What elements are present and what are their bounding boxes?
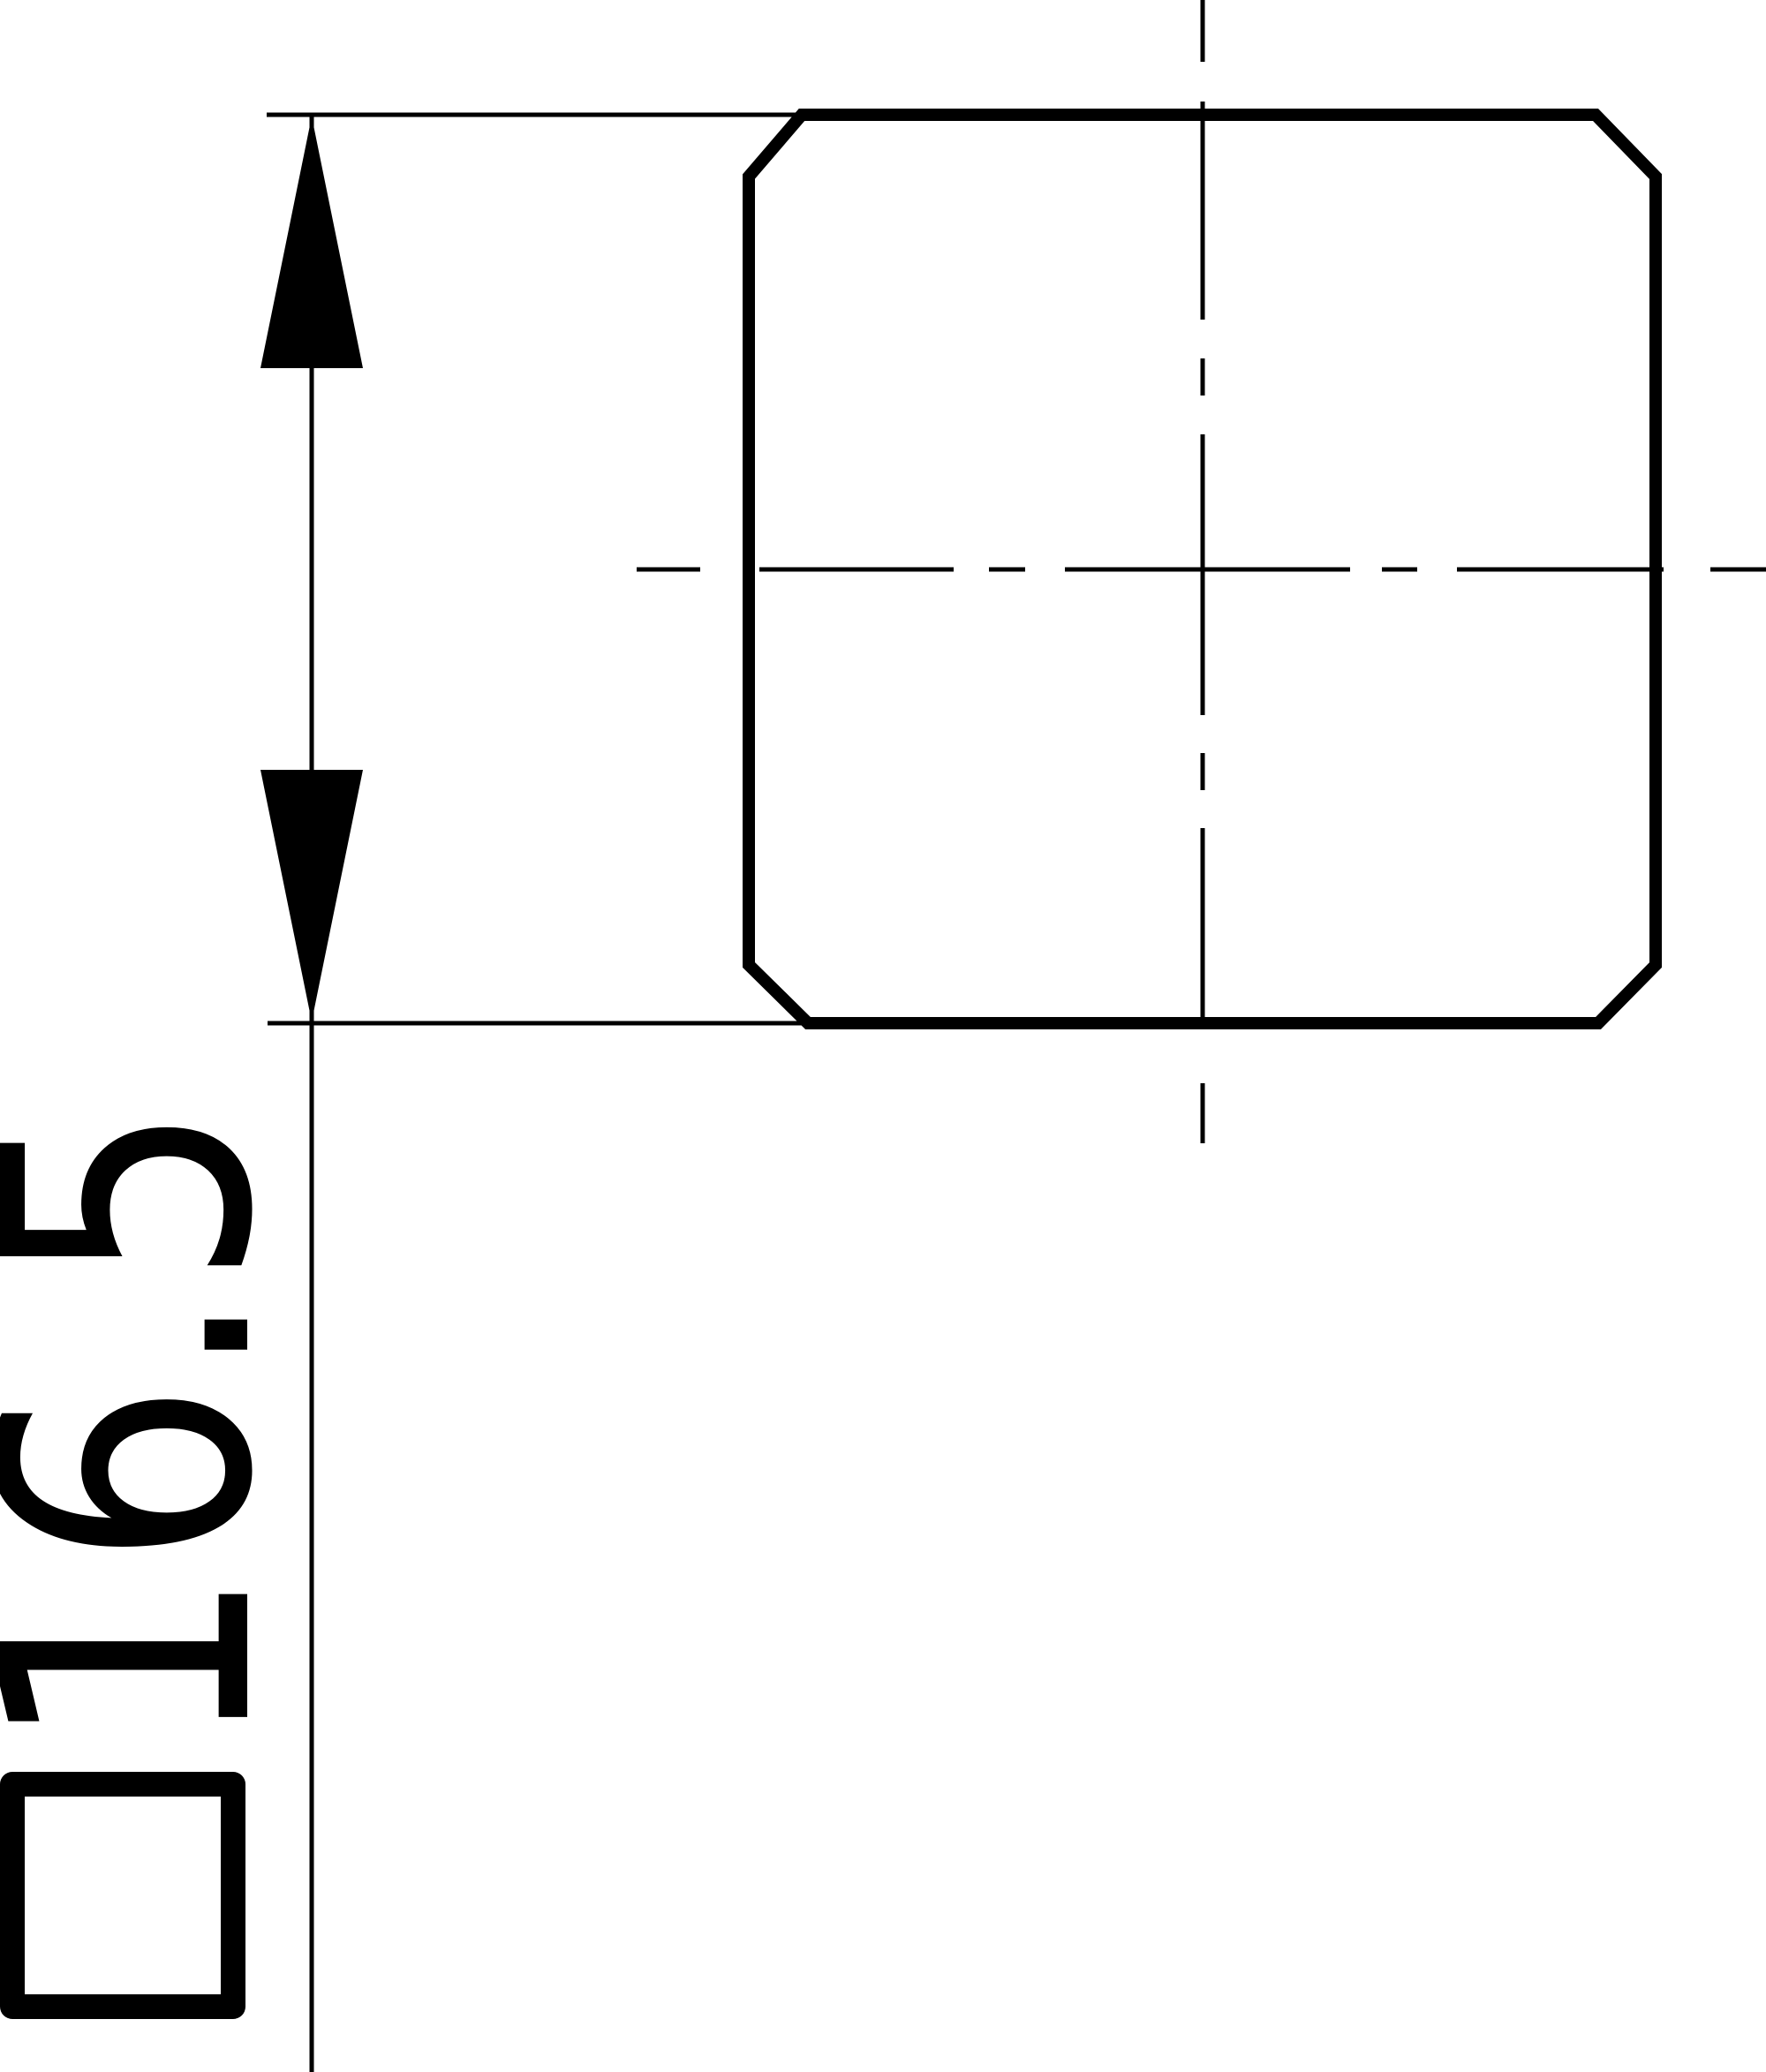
dimension-arrow-down-icon: [260, 770, 363, 1021]
technical-drawing-canvas: 16.5: [0, 0, 1766, 2072]
dimension-arrow-up-icon: [260, 117, 363, 368]
drawing-svg: 16.5: [0, 0, 1766, 2072]
square-symbol-icon: [12, 1784, 233, 2007]
dimension-value-text: 16.5: [0, 1102, 329, 1753]
